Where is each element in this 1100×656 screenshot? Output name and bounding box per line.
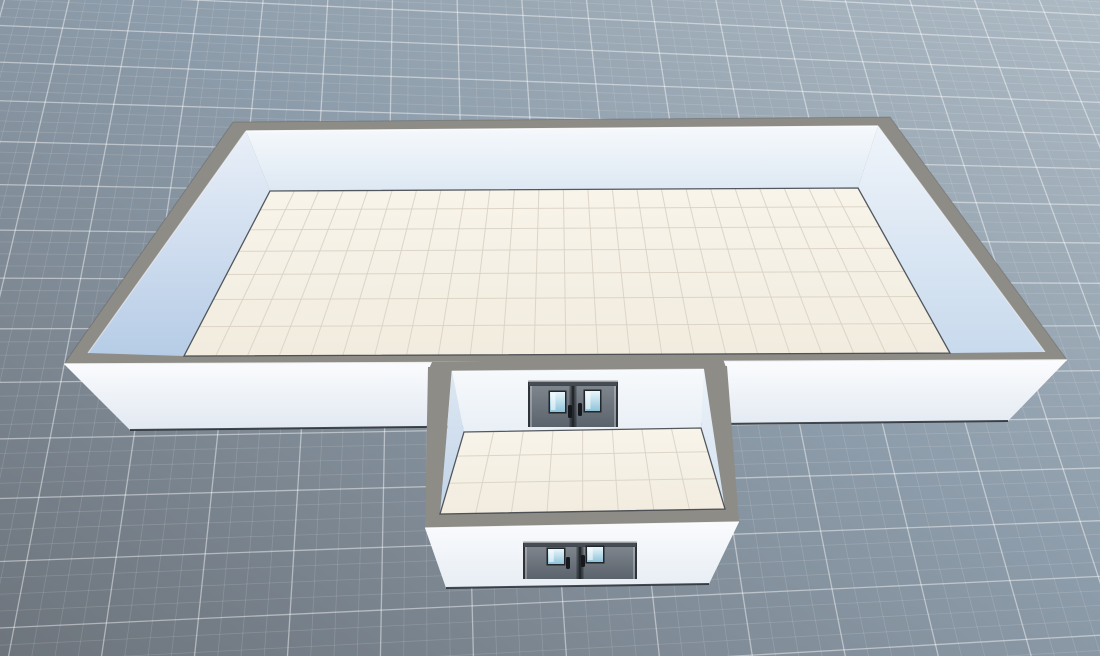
door-window bbox=[549, 391, 567, 414]
floorplan-3d-viewport[interactable] bbox=[0, 0, 1100, 656]
door-handle[interactable] bbox=[581, 555, 585, 567]
scene-canvas[interactable] bbox=[0, 0, 1100, 656]
door-handle[interactable] bbox=[578, 403, 582, 416]
door-window bbox=[547, 548, 566, 566]
big-room-back-wall[interactable] bbox=[246, 126, 878, 191]
door-window bbox=[584, 390, 602, 413]
double-door-front[interactable] bbox=[523, 541, 637, 579]
small-room[interactable] bbox=[425, 359, 739, 588]
door-handle[interactable] bbox=[566, 557, 570, 569]
double-door-back[interactable] bbox=[528, 380, 618, 427]
small-room-floor[interactable] bbox=[440, 428, 725, 514]
door-window bbox=[586, 546, 605, 564]
door-handle[interactable] bbox=[568, 405, 572, 418]
big-room-floor[interactable] bbox=[184, 188, 950, 356]
